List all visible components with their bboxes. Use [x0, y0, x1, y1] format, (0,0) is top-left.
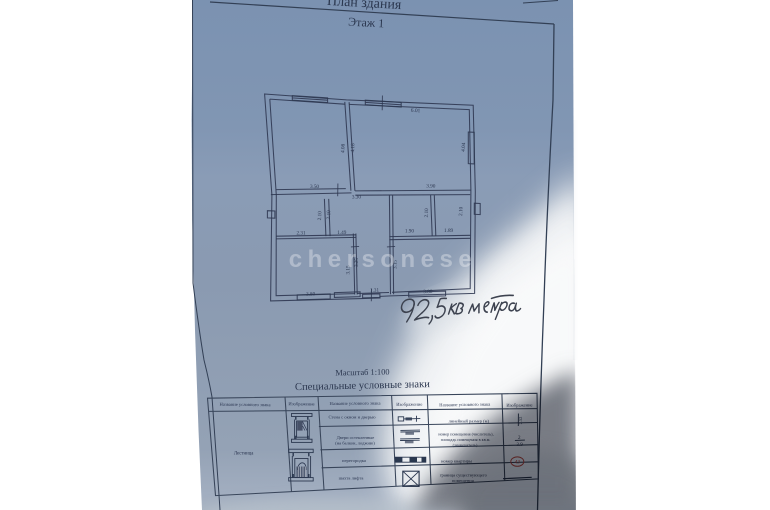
svg-text:3.50: 3.50 [310, 184, 320, 190]
svg-text:Изображение: Изображение [288, 401, 314, 406]
svg-text:Масштаб 1:100: Масштаб 1:100 [335, 368, 389, 378]
svg-text:Этаж 1: Этаж 1 [348, 15, 385, 31]
svg-text:chersonese: chersonese [289, 246, 477, 273]
svg-text:1.89: 1.89 [444, 228, 453, 234]
svg-text:1.90: 1.90 [405, 229, 414, 235]
svg-text:Стена с окном и дверью: Стена с окном и дверью [328, 415, 376, 420]
svg-text:4.08: 4.08 [340, 143, 346, 153]
svg-text:4.18: 4.18 [350, 143, 356, 153]
svg-text:2.10: 2.10 [317, 211, 323, 221]
svg-text:Название условного знака: Название условного знака [439, 402, 490, 408]
svg-text:Название условного знака: Название условного знака [329, 401, 380, 406]
svg-text:2.10: 2.10 [458, 206, 464, 216]
svg-text:2.31: 2.31 [296, 231, 305, 237]
svg-text:3.30: 3.30 [352, 195, 361, 201]
svg-text:1.49: 1.49 [337, 230, 346, 236]
svg-text:3.90: 3.90 [426, 183, 436, 189]
svg-text:3.80: 3.80 [306, 292, 316, 298]
svg-text:линейный размер (м): линейный размер (м) [449, 419, 490, 424]
svg-text:Двери остекленные: Двери остекленные [337, 435, 375, 440]
svg-text:Изображение: Изображение [396, 402, 422, 407]
svg-text:1.31: 1.31 [370, 288, 380, 294]
svg-text:перегородка: перегородка [342, 458, 366, 463]
svg-text:Лестница: Лестница [234, 451, 254, 456]
svg-text:Название условного знака: Название условного знака [219, 402, 270, 407]
svg-text:6.01: 6.01 [411, 108, 421, 115]
svg-text:2.10: 2.10 [424, 208, 430, 218]
svg-text:2.10: 2.10 [326, 210, 332, 220]
svg-text:4.04: 4.04 [461, 142, 467, 152]
svg-text:шахта лифта: шахта лифта [339, 475, 364, 480]
svg-text:3.80: 3.80 [423, 289, 433, 295]
